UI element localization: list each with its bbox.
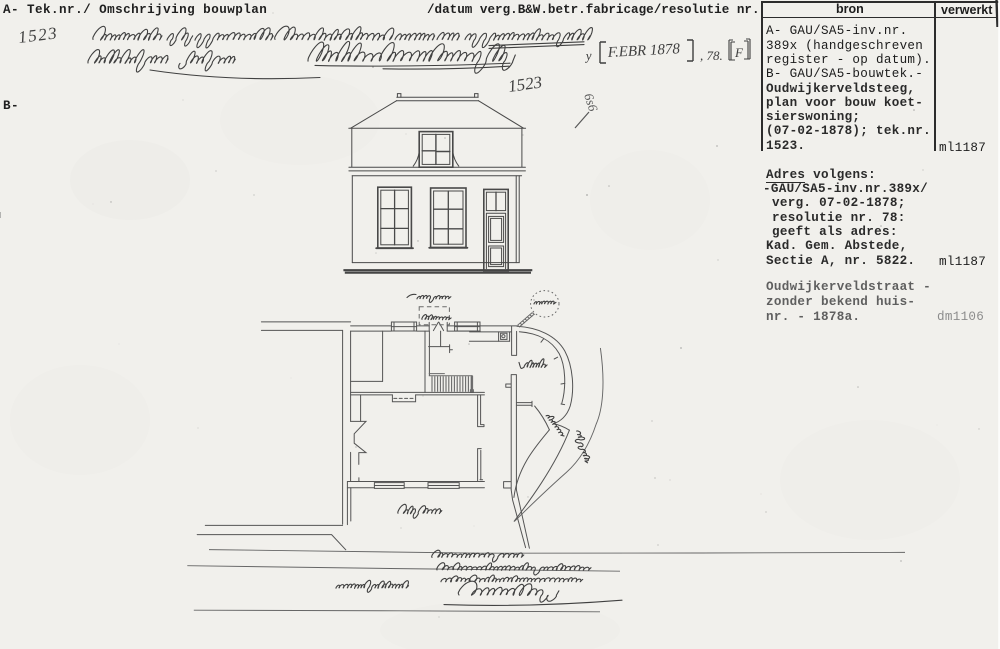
svg-text:, 78.: , 78.	[700, 48, 723, 63]
svg-text:F: F	[734, 45, 744, 60]
svg-text:6s6: 6s6	[581, 91, 601, 113]
svg-text:1523: 1523	[507, 72, 543, 96]
svg-text:1523: 1523	[17, 23, 59, 47]
svg-text:F.EBR 1878: F.EBR 1878	[606, 41, 680, 61]
svg-text:y: y	[583, 48, 592, 63]
